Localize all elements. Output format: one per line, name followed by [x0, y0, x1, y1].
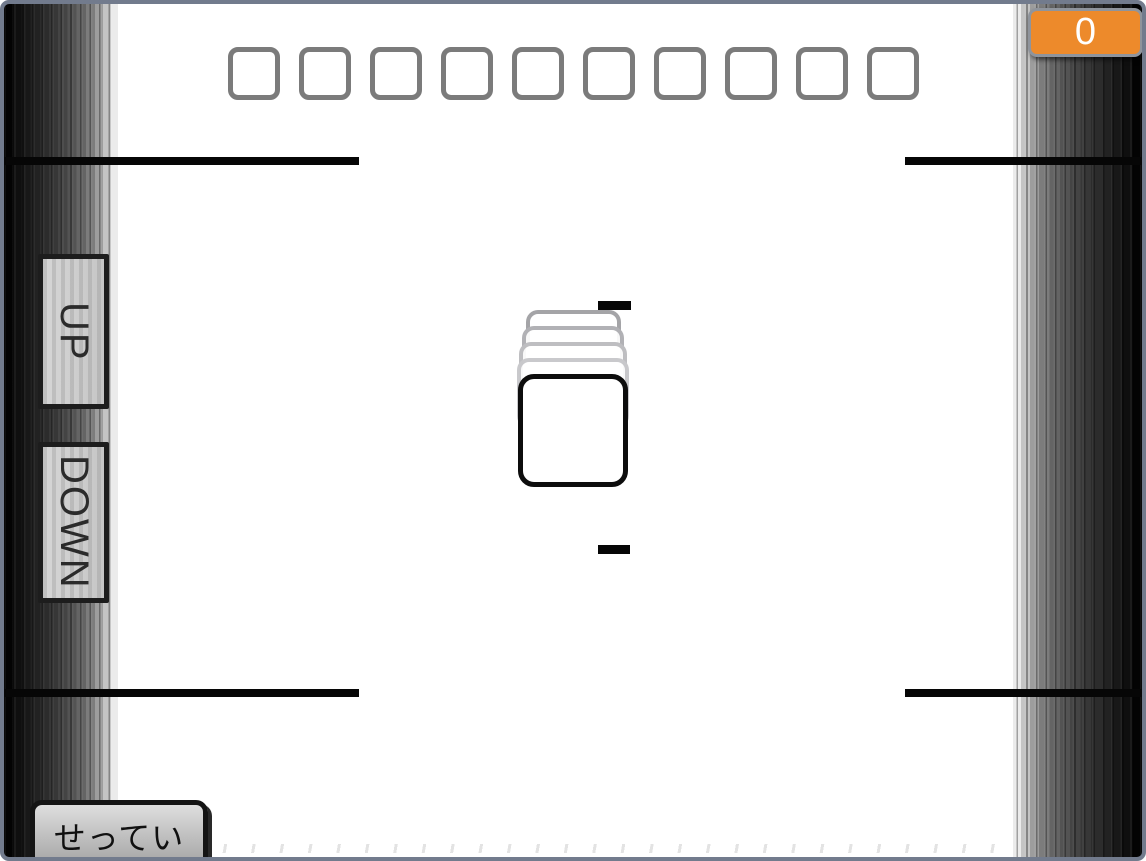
marker-dash-top [598, 301, 631, 310]
slot [583, 47, 635, 100]
bottom-squiggle-decoration [212, 844, 1012, 853]
slot [512, 47, 564, 100]
up-button-label: UP [51, 302, 96, 362]
boundary-line-bottom-left [0, 689, 359, 697]
boundary-line-top-left [0, 157, 359, 165]
settings-button-label: せってい [54, 813, 184, 859]
score-value: 0 [1075, 11, 1096, 54]
slot-row [228, 47, 919, 100]
boundary-line-bottom-right [905, 689, 1146, 697]
marker-dash-bottom [598, 545, 630, 554]
score-display: 0 [1028, 8, 1143, 57]
settings-button[interactable]: せってい [30, 800, 208, 861]
up-button[interactable]: UP [38, 254, 109, 409]
slot [796, 47, 848, 100]
slot [654, 47, 706, 100]
right-stripe-border [1013, 3, 1143, 858]
card-front [518, 374, 628, 487]
card-stack[interactable] [490, 300, 670, 500]
slot [867, 47, 919, 100]
down-button-label: DOWN [51, 455, 96, 590]
slot [441, 47, 493, 100]
slot [299, 47, 351, 100]
slot [725, 47, 777, 100]
down-button[interactable]: DOWN [38, 442, 109, 603]
boundary-line-top-right [905, 157, 1146, 165]
game-stage: 0 UP DOWN せってい [0, 0, 1146, 861]
slot [228, 47, 280, 100]
slot [370, 47, 422, 100]
left-stripe-border [3, 3, 118, 858]
